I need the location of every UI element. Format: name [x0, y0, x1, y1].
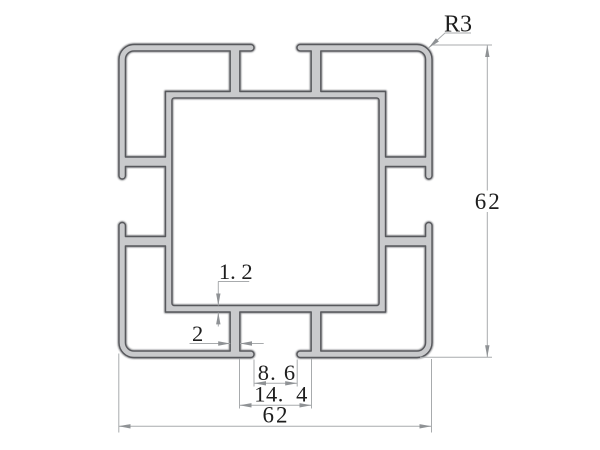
- svg-text:1. 2: 1. 2: [219, 259, 253, 284]
- svg-text:2: 2: [192, 321, 203, 346]
- svg-text:62: 62: [475, 189, 502, 214]
- svg-text:14. 4: 14. 4: [254, 381, 308, 406]
- svg-text:R3: R3: [444, 12, 472, 38]
